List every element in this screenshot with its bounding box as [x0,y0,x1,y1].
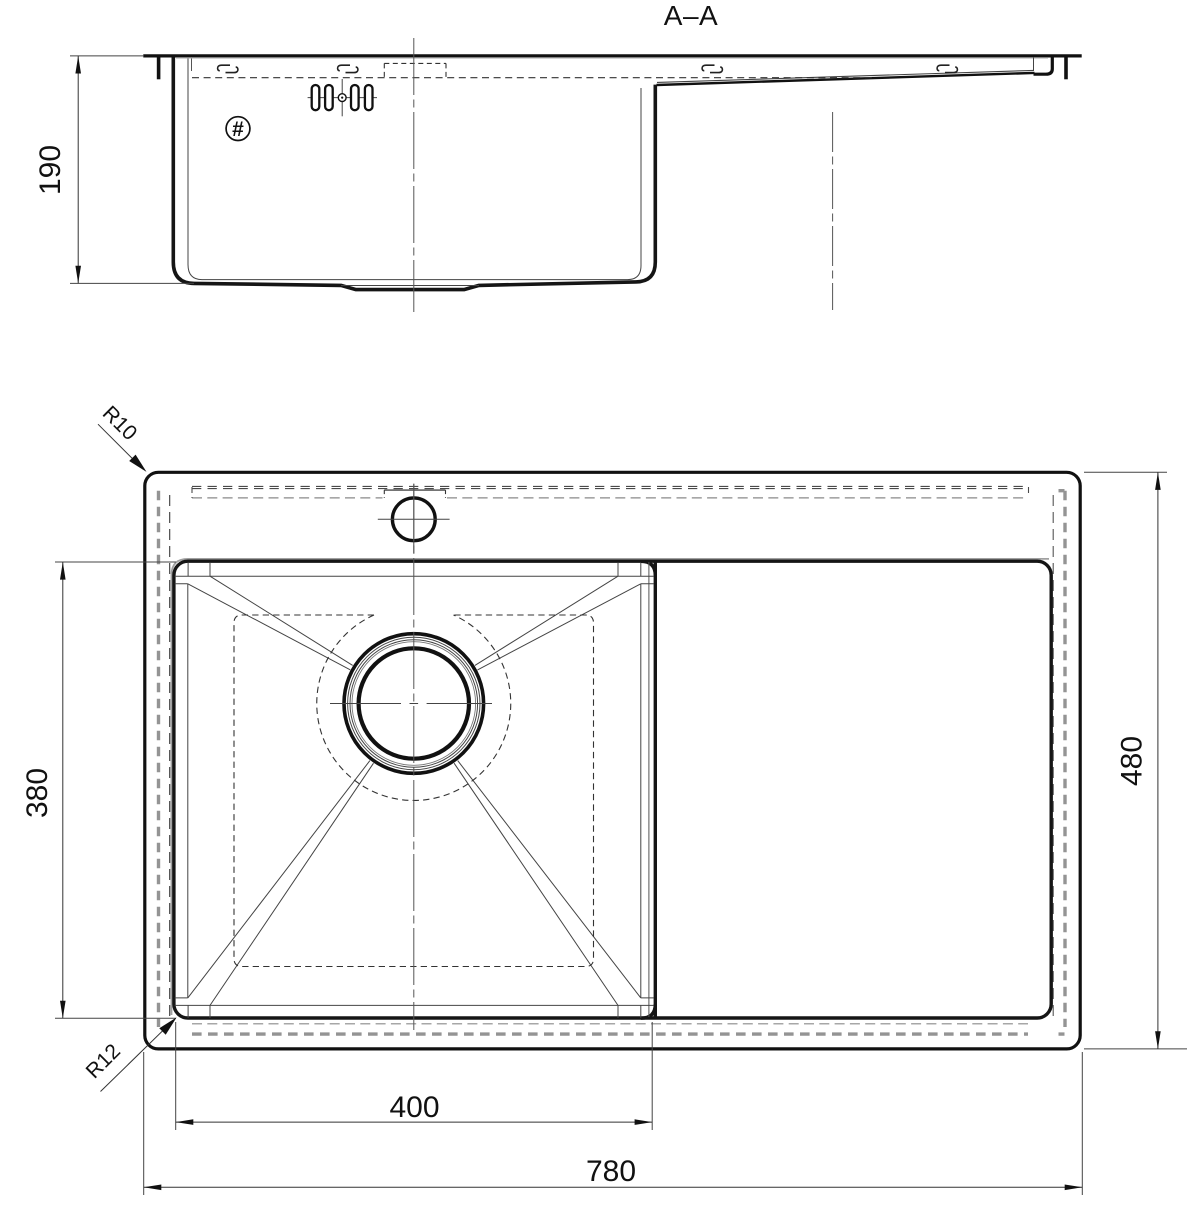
svg-text:#: # [232,118,244,141]
svg-text:400: 400 [389,1091,439,1124]
svg-text:A–A: A–A [664,0,718,31]
svg-text:480: 480 [1116,736,1149,786]
svg-text:190: 190 [34,145,67,195]
svg-text:780: 780 [586,1155,636,1188]
svg-text:380: 380 [21,768,54,818]
